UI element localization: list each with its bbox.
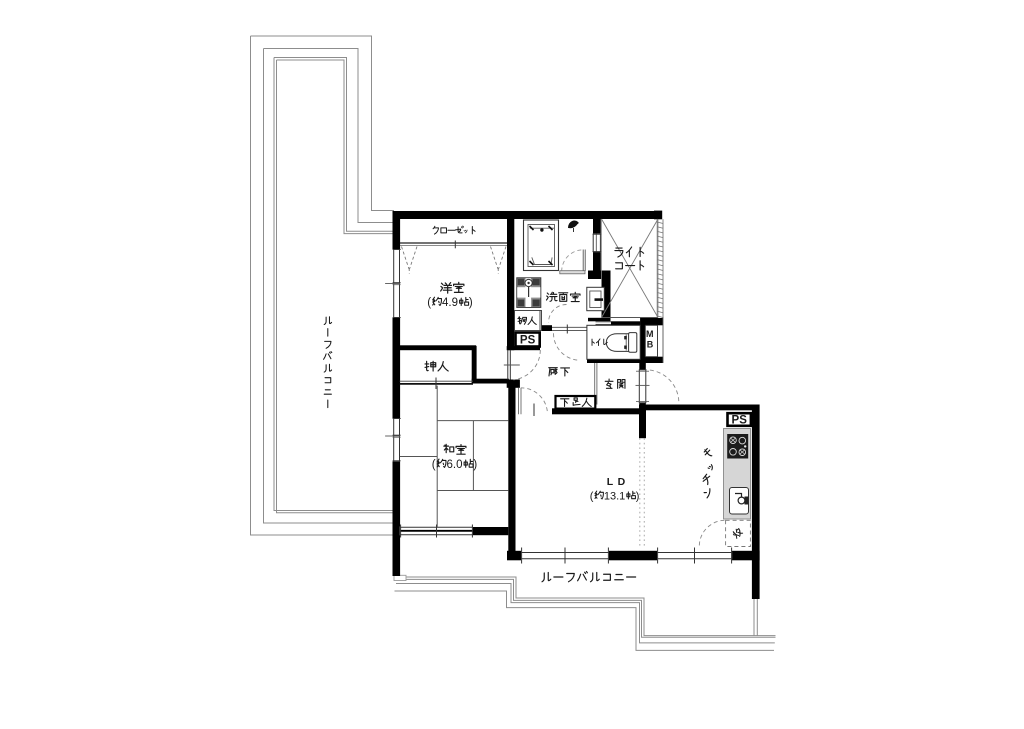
svg-text:PS: PS <box>732 415 748 427</box>
svg-text:(: ( <box>590 490 594 502</box>
svg-text:4.9: 4.9 <box>442 297 458 309</box>
svg-text:): ) <box>469 297 473 309</box>
svg-text:L: L <box>607 476 614 488</box>
svg-text:(: ( <box>432 459 436 471</box>
svg-text:D: D <box>618 476 626 488</box>
svg-text:B: B <box>647 340 654 350</box>
svg-text:): ) <box>636 490 640 502</box>
svg-text:(: ( <box>427 297 431 309</box>
svg-text:): ) <box>473 459 477 471</box>
svg-text:M: M <box>646 329 654 339</box>
svg-text:6.0: 6.0 <box>447 459 463 471</box>
svg-text:PS: PS <box>520 335 536 347</box>
svg-text:13.1: 13.1 <box>604 490 625 502</box>
